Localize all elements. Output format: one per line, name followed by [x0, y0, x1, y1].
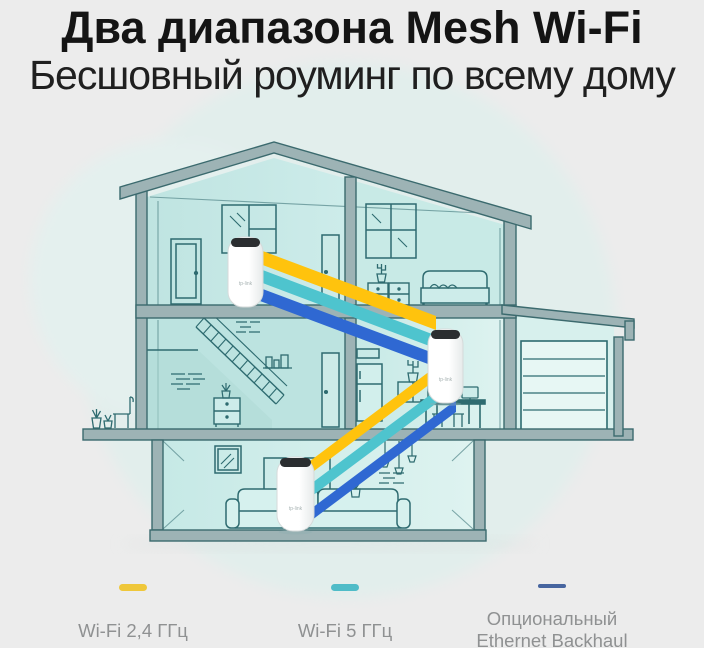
page: tp-link tp-link tp-link Два диапазона Me…: [0, 0, 704, 648]
garage-door: [521, 341, 607, 431]
wifi24-dash-icon: [119, 584, 147, 591]
legend-label-wifi5: Wi-Fi 5 ГГц: [255, 620, 435, 642]
page-title: Два диапазона Mesh Wi-Fi: [0, 2, 704, 54]
legend-label-ethernet-line1: Опциональный: [452, 608, 652, 630]
wifi5-dash-icon: [331, 584, 359, 591]
legend-label-wifi24: Wi-Fi 2,4 ГГц: [43, 620, 223, 642]
device-logo: tp-link: [439, 377, 453, 383]
legend-item-wifi24: Wi-Fi 2,4 ГГц: [43, 578, 223, 642]
bed: [421, 271, 489, 308]
device-logo: tp-link: [289, 506, 303, 512]
device-top-cap: [231, 238, 260, 247]
legend-item-ethernet: Опциональный Ethernet Backhaul: [452, 578, 652, 648]
legend-item-wifi5: Wi-Fi 5 ГГц: [255, 578, 435, 642]
legend-label-ethernet: Опциональный Ethernet Backhaul: [452, 608, 652, 648]
legend-label-ethernet-line2: Ethernet Backhaul: [452, 630, 652, 648]
device-logo: tp-link: [239, 281, 253, 287]
page-subtitle: Бесшовный роуминг по всему дому: [0, 52, 704, 99]
device-top-cap: [280, 458, 311, 467]
mesh-device-1: tp-link: [228, 237, 263, 307]
mesh-device-2: tp-link: [428, 329, 463, 403]
device-top-cap: [431, 330, 460, 339]
nightstand: [214, 398, 240, 427]
laptop: [462, 387, 478, 400]
ethernet-dash-icon: [538, 584, 566, 588]
mesh-device-3: tp-link: [277, 457, 314, 531]
